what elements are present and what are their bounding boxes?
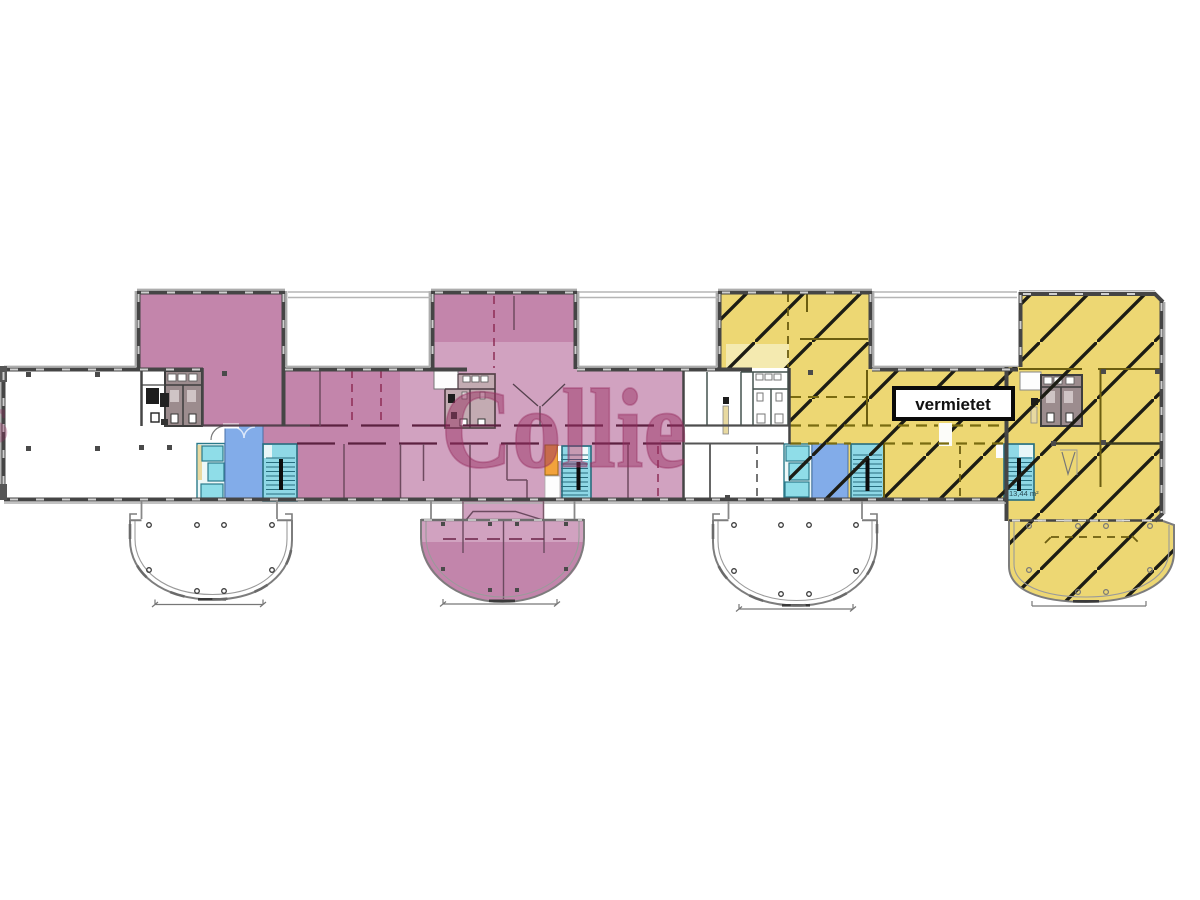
svg-text:13,44 m²: 13,44 m²	[1009, 489, 1039, 498]
svg-text:s: s	[0, 379, 9, 459]
svg-text:Collie: Collie	[441, 367, 687, 492]
svg-text:vermietet: vermietet	[915, 395, 991, 414]
